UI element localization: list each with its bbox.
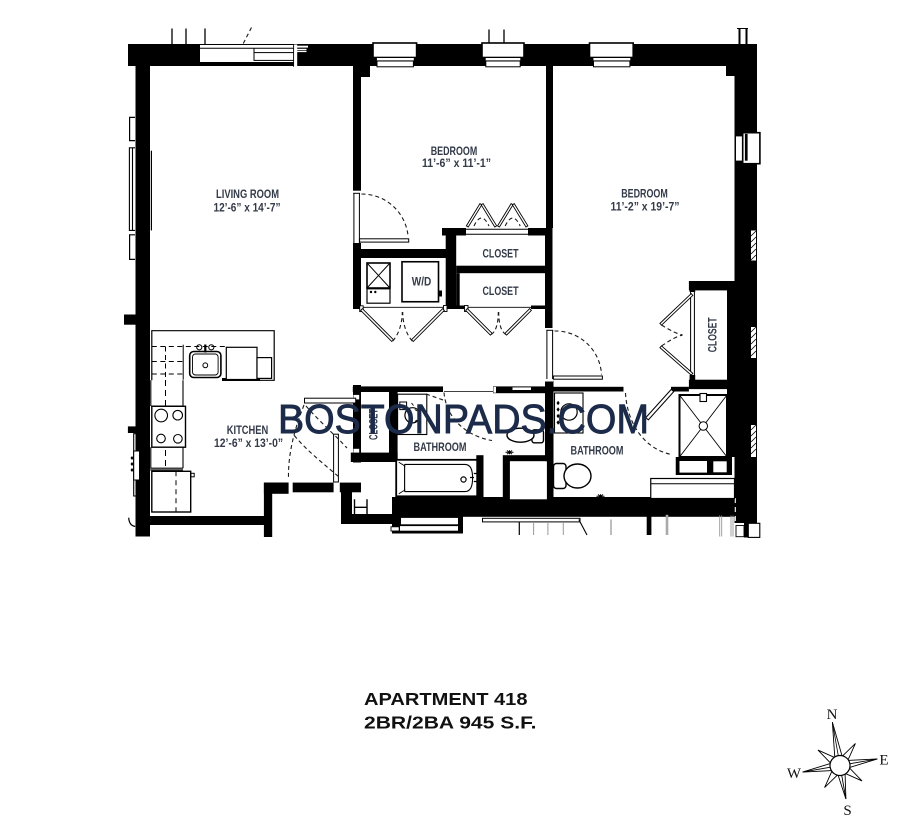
- svg-text:E: E: [879, 753, 888, 769]
- svg-text:BATHROOM: BATHROOM: [571, 444, 624, 458]
- svg-text:BOSTONPADS.COM: BOSTONPADS.COM: [278, 396, 649, 442]
- svg-text:CLOSET: CLOSET: [706, 317, 720, 352]
- svg-text:11’-2” x 19’-7”: 11’-2” x 19’-7”: [611, 202, 680, 214]
- svg-text:11’-6” x 11’-1”: 11’-6” x 11’-1”: [422, 158, 491, 170]
- svg-text:W/D: W/D: [412, 275, 432, 289]
- svg-text:APARTMENT 418: APARTMENT 418: [364, 689, 528, 709]
- svg-text:12’-6” x 13’-0”: 12’-6” x 13’-0”: [214, 438, 283, 450]
- svg-text:CLOSET: CLOSET: [483, 284, 519, 298]
- svg-text:LIVING ROOM: LIVING ROOM: [216, 187, 279, 201]
- svg-text:2BR/2BA 945 S.F.: 2BR/2BA 945 S.F.: [364, 713, 537, 733]
- svg-text:BEDROOM: BEDROOM: [431, 144, 478, 158]
- svg-text:W: W: [787, 766, 802, 782]
- svg-text:CLOSET: CLOSET: [483, 247, 519, 261]
- svg-text:KITCHEN: KITCHEN: [227, 423, 269, 437]
- svg-text:BEDROOM: BEDROOM: [621, 187, 668, 201]
- svg-text:N: N: [827, 707, 838, 723]
- svg-text:S: S: [843, 803, 851, 819]
- svg-text:12’-6” x 14’-7”: 12’-6” x 14’-7”: [214, 203, 281, 215]
- svg-text:BATHROOM: BATHROOM: [414, 440, 467, 454]
